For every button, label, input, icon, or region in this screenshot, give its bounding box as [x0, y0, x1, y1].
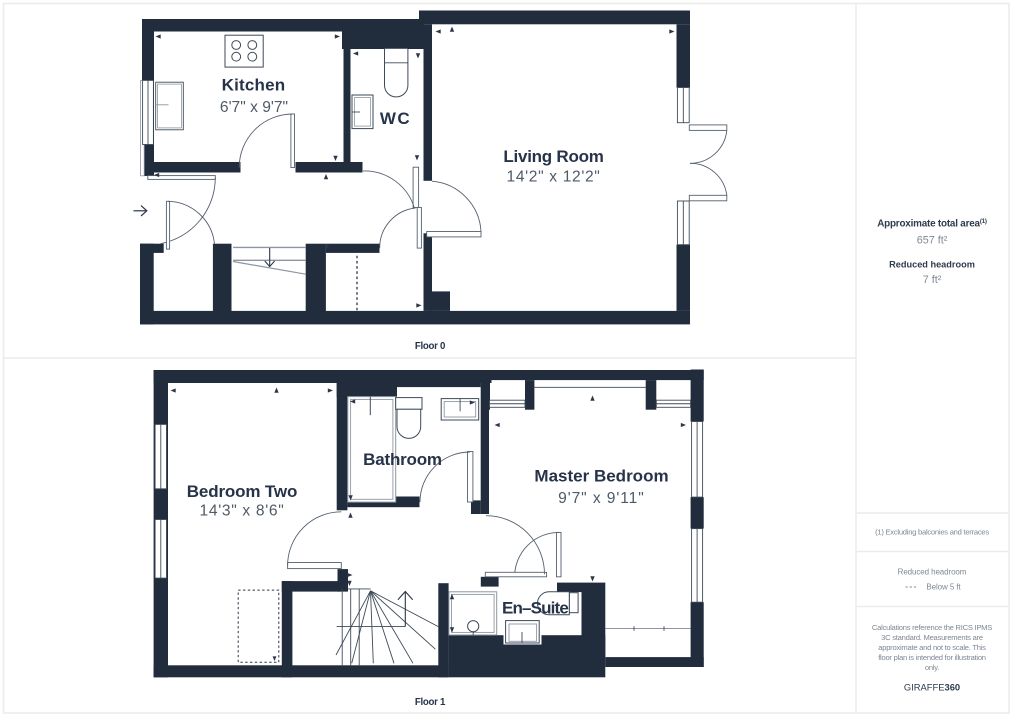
- svg-text:657 ft²: 657 ft²: [917, 235, 948, 247]
- svg-text:Floor 0: Floor 0: [415, 341, 445, 352]
- svg-text:En–Suite: En–Suite: [502, 599, 568, 618]
- svg-text:only.: only.: [925, 663, 939, 672]
- svg-text:Master Bedroom: Master Bedroom: [534, 467, 668, 486]
- svg-text:14'2" x 12'2": 14'2" x 12'2": [507, 169, 601, 186]
- svg-text:Bathroom: Bathroom: [363, 450, 442, 469]
- svg-text:(1) Excluding balconies and te: (1) Excluding balconies and terraces: [875, 528, 989, 537]
- svg-text:floor plan is intended for ill: floor plan is intended for illustration: [878, 653, 986, 662]
- svg-text:GIRAFFE360: GIRAFFE360: [904, 682, 960, 693]
- svg-text:Approximate total area(1): Approximate total area(1): [877, 218, 987, 230]
- svg-text:14'3" x 8'6": 14'3" x 8'6": [199, 503, 284, 520]
- svg-text:approximate and not to scale.: approximate and not to scale. This: [878, 643, 986, 652]
- svg-text:Living Room: Living Room: [503, 147, 603, 166]
- svg-text:Kitchen: Kitchen: [222, 76, 286, 95]
- svg-text:6'7" x 9'7": 6'7" x 9'7": [220, 99, 288, 116]
- svg-text:3C standard. Measurements are: 3C standard. Measurements are: [881, 633, 983, 642]
- svg-text:Calculations reference the RIC: Calculations reference the RICS IPMS: [872, 623, 992, 632]
- svg-text:Reduced headroom: Reduced headroom: [889, 260, 975, 270]
- svg-text:Floor 1: Floor 1: [415, 697, 446, 708]
- svg-text:Reduced headroom: Reduced headroom: [898, 568, 967, 577]
- svg-text:7 ft²: 7 ft²: [923, 274, 942, 286]
- svg-text:Bedroom Two: Bedroom Two: [187, 482, 297, 501]
- svg-text:Below 5 ft: Below 5 ft: [926, 583, 961, 592]
- svg-text:WC: WC: [380, 109, 411, 128]
- svg-text:9'7" x 9'11": 9'7" x 9'11": [558, 490, 645, 507]
